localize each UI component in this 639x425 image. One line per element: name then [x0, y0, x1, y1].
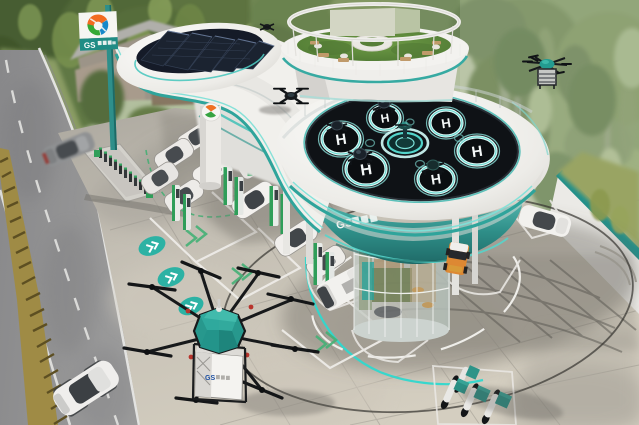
svg-text:GS: GS: [84, 41, 97, 51]
svg-text:GS: GS: [205, 375, 215, 382]
